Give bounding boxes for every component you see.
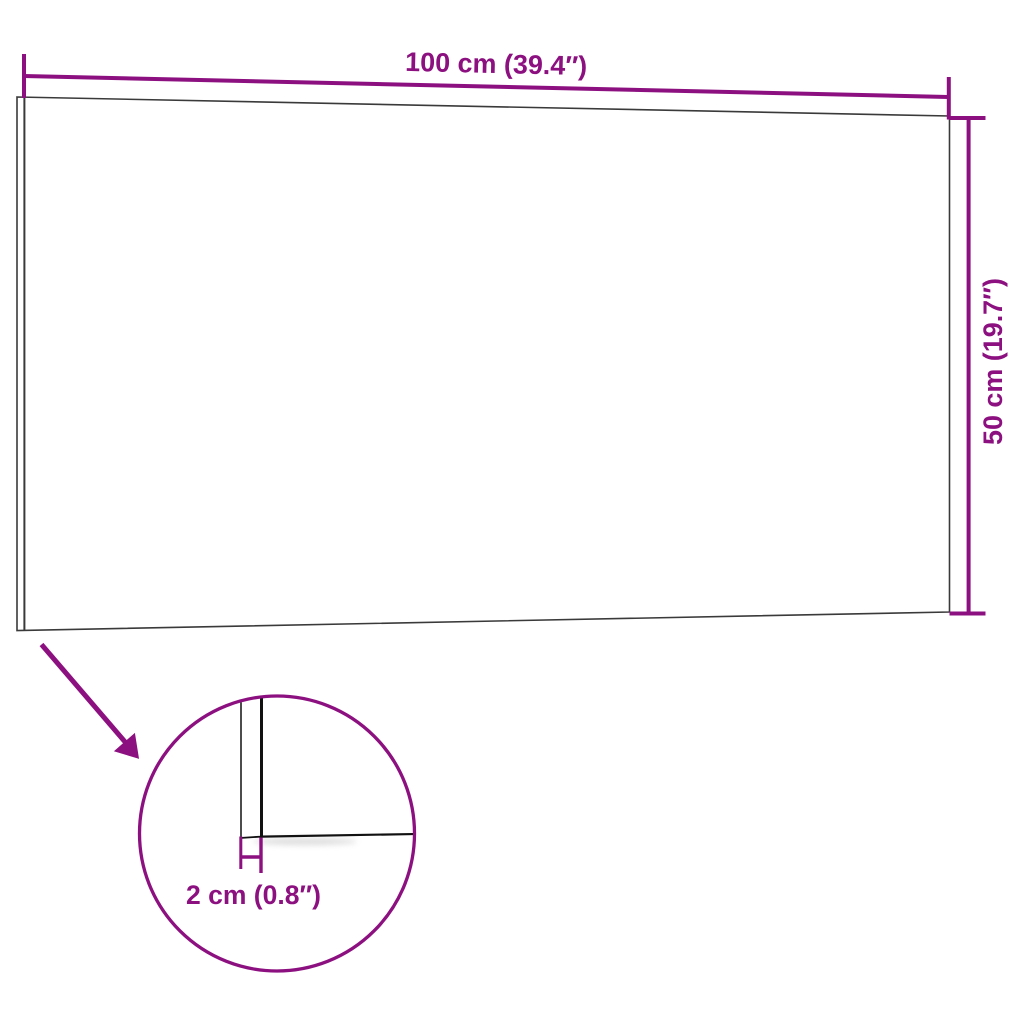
svg-text:2 cm (0.8″): 2 cm (0.8″) bbox=[186, 880, 321, 910]
svg-text:50 cm (19.7″): 50 cm (19.7″) bbox=[978, 278, 1008, 445]
svg-text:100 cm (39.4″): 100 cm (39.4″) bbox=[405, 47, 588, 81]
